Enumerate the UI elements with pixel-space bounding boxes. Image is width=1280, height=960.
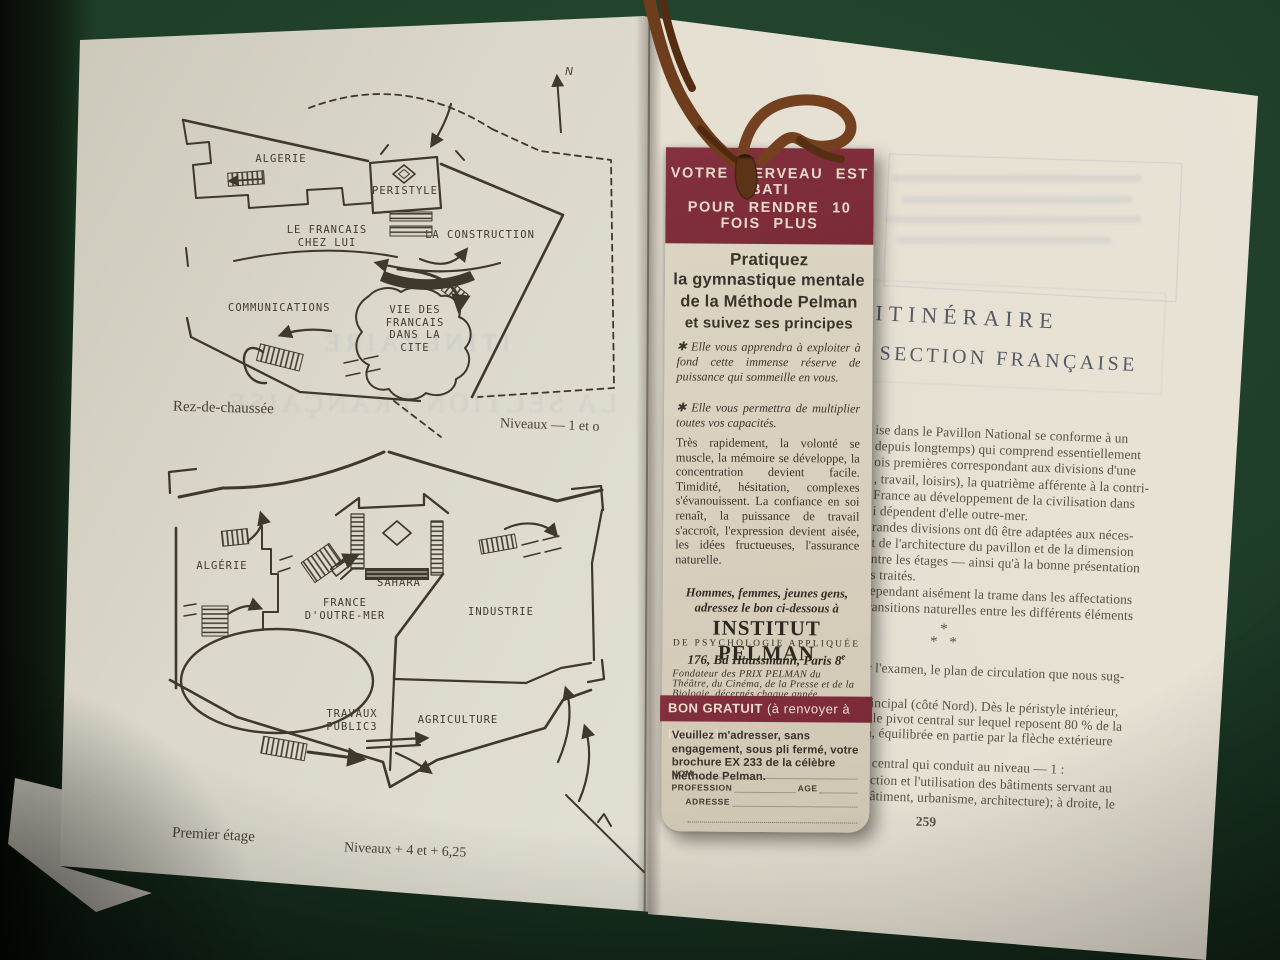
bookmark-ribbon: [0, 0, 1280, 960]
book-photo-scene: ITINERAIRE LA SECTION FRANÇAISE: [0, 0, 1280, 960]
